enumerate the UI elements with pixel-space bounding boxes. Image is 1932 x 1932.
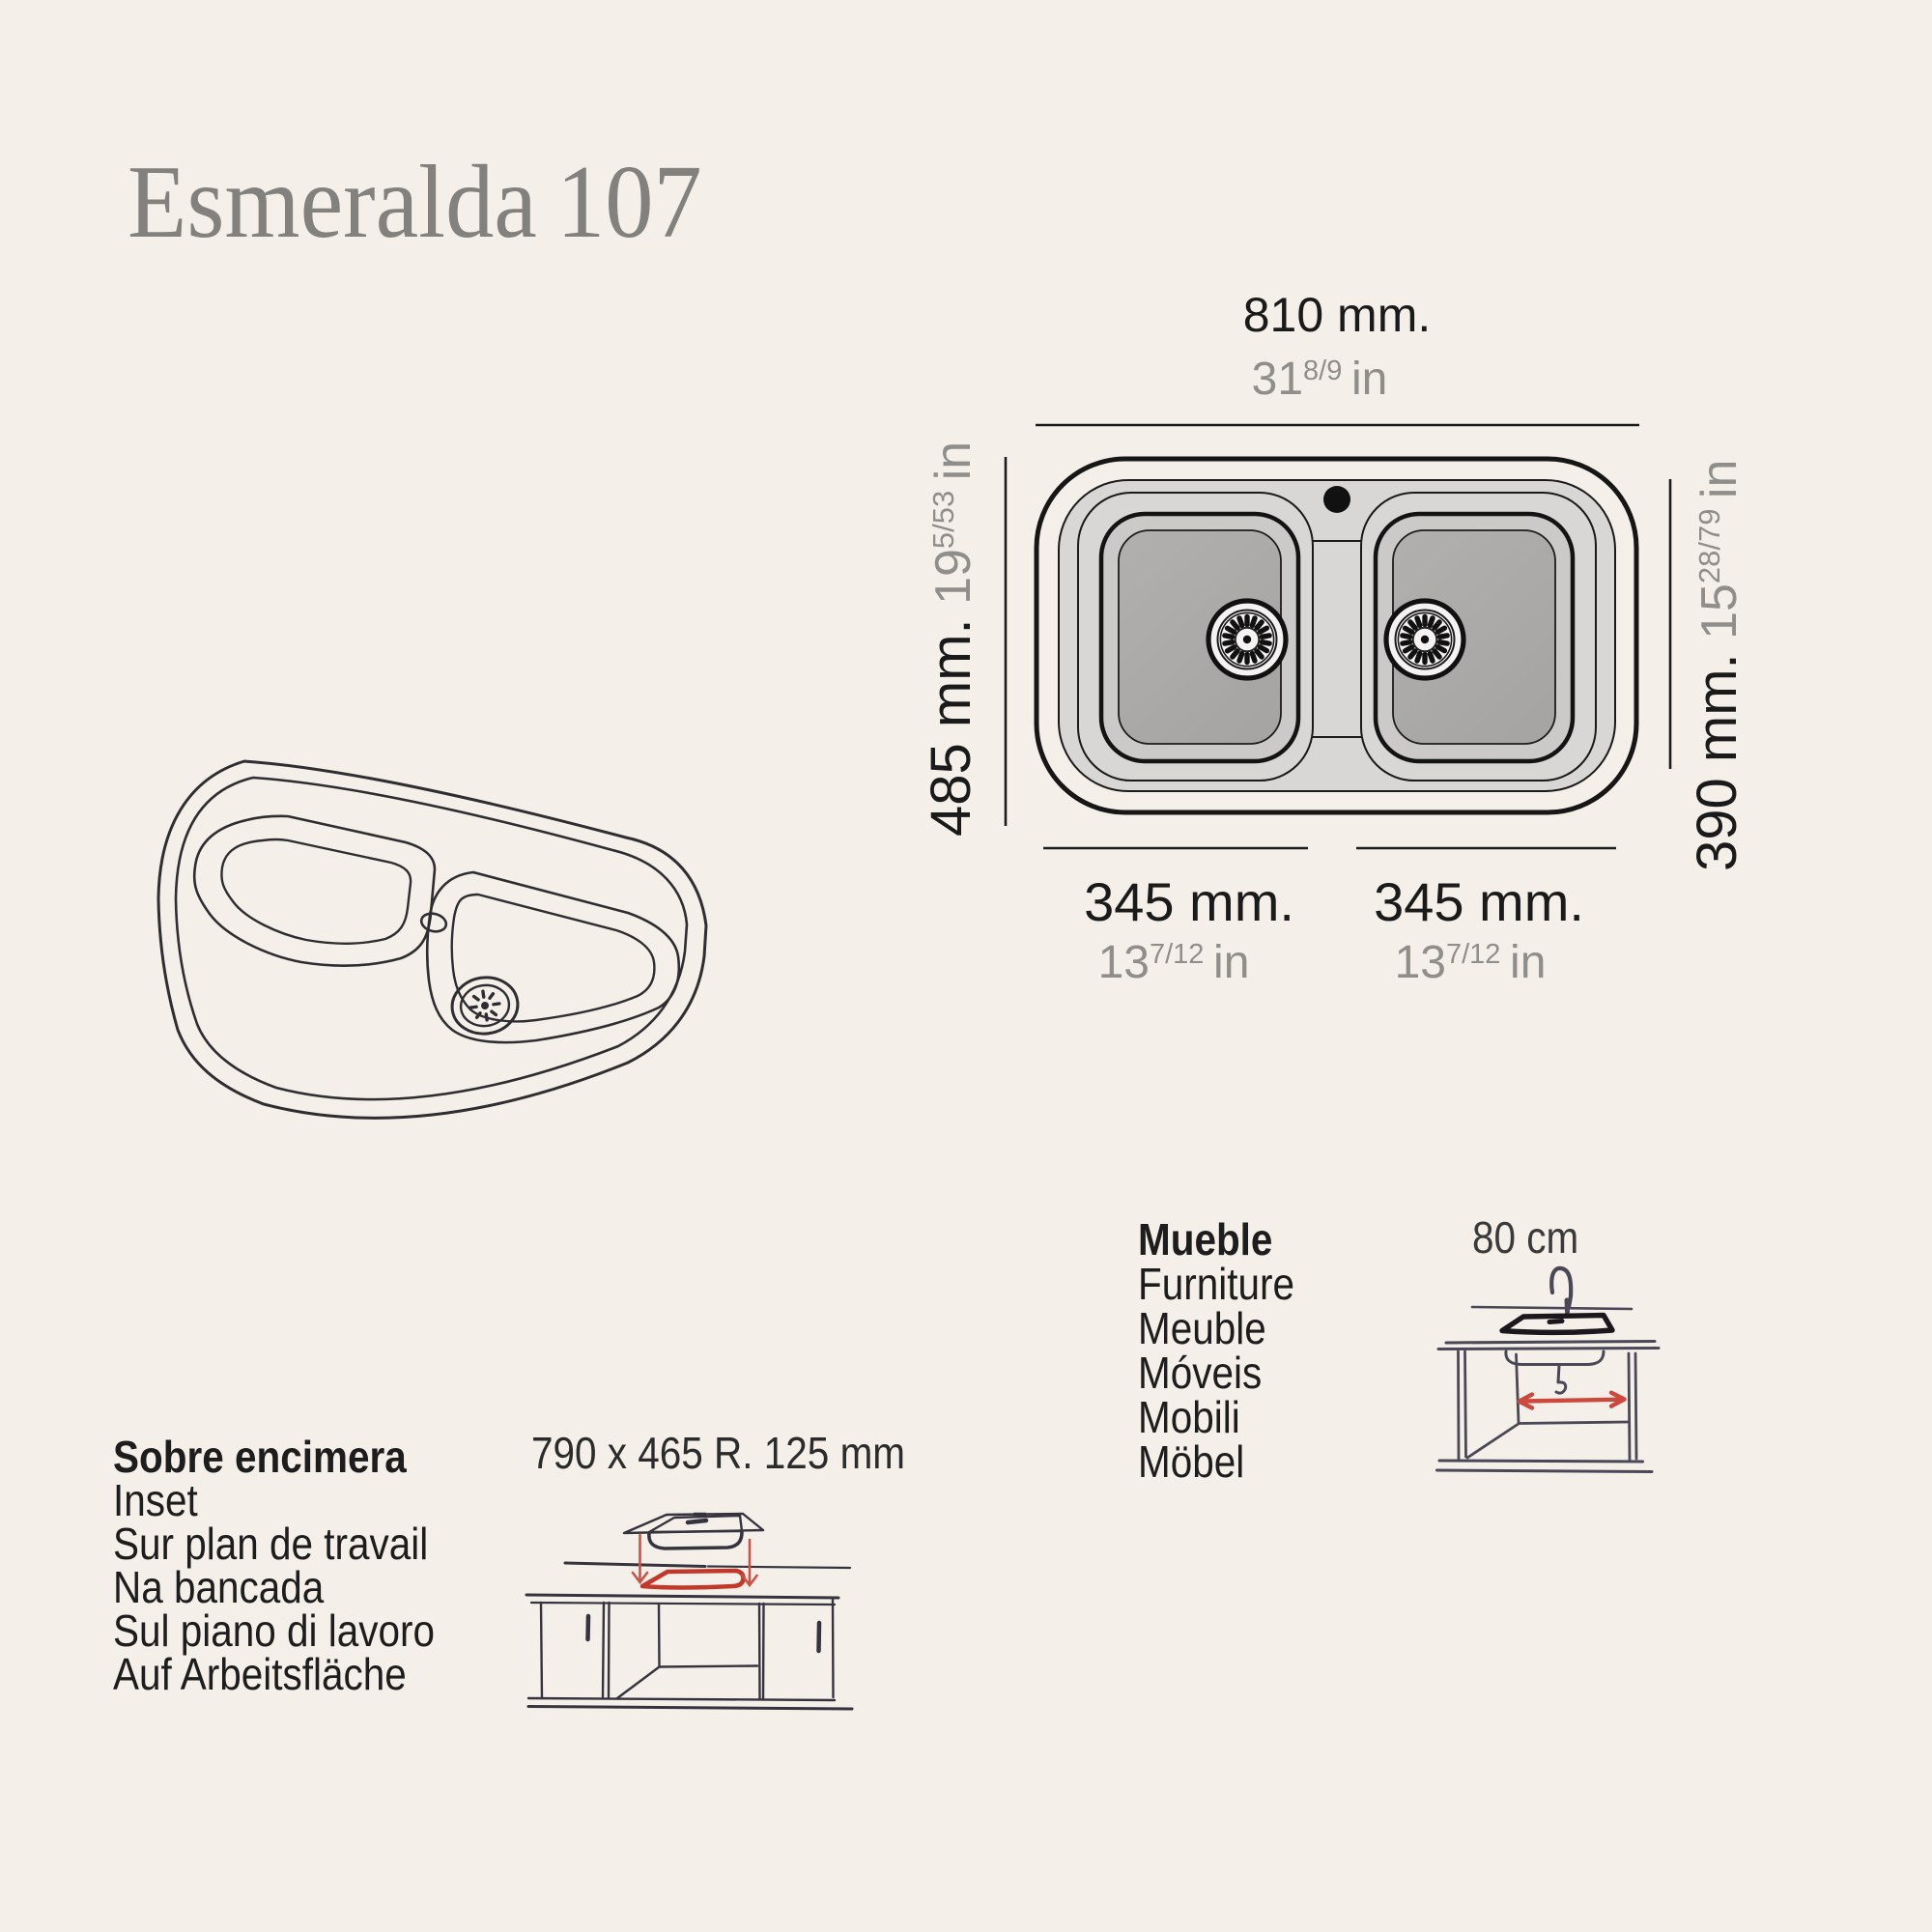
- svg-text:485 mm. 195/53 in: 485 mm. 195/53 in: [920, 441, 982, 837]
- svg-text:137/12 in: 137/12 in: [1098, 937, 1250, 988]
- svg-text:137/12 in: 137/12 in: [1395, 937, 1547, 988]
- svg-text:345 mm.: 345 mm.: [1084, 871, 1294, 932]
- svg-text:810 mm.: 810 mm.: [1243, 288, 1432, 342]
- svg-text:318/9 in: 318/9 in: [1252, 354, 1388, 405]
- svg-text:345 mm.: 345 mm.: [1374, 871, 1584, 932]
- svg-text:390 mm. 1528/79 in: 390 mm. 1528/79 in: [1686, 460, 1748, 871]
